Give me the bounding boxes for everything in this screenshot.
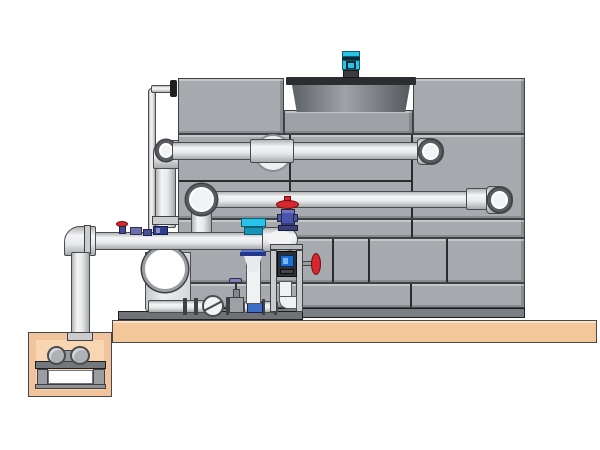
sump-riser-collar: [67, 332, 93, 341]
sump-pump-motor-end: [47, 346, 66, 365]
lower-pipe-sleeve: [466, 188, 488, 210]
cyan-valve-top: [241, 218, 266, 227]
sump-stand-base-bar: [35, 384, 106, 389]
sump-pump-volute-end: [70, 346, 90, 365]
globe-valve-side-lug: [277, 214, 282, 222]
upper-pipe-elbow-face: [419, 140, 442, 163]
tower-fan-deck: [284, 110, 413, 134]
fan-motor-base: [343, 70, 359, 78]
sump-stand-top-bar: [35, 361, 106, 369]
pipe-flange: [194, 298, 198, 315]
purple-fitting-small: [143, 229, 152, 236]
gate-valve-bonnet: [233, 289, 240, 298]
globe-valve-side-lug: [293, 214, 298, 222]
sensor-line-horizontal: [151, 85, 172, 93]
gate-valve-handle: [229, 278, 242, 283]
lower-pipe-left-elbow-face: [186, 184, 217, 215]
panel-seam: [332, 239, 334, 282]
upper-pipe-sleeve: [250, 139, 294, 163]
sump-stand-left-leg: [37, 369, 48, 385]
pump-suction-cover: [142, 246, 188, 292]
meter-indicator: [280, 269, 294, 274]
navy-fitting-band: [156, 228, 160, 233]
meter-screen-glyph: [283, 258, 288, 264]
tower-panel-top-right: [413, 78, 525, 134]
platform-slab: [112, 320, 597, 343]
header-elbow-flange: [84, 225, 91, 254]
panel-seam: [179, 180, 411, 182]
fan-cowl-rim: [286, 77, 416, 85]
globe-valve-base-flange: [278, 225, 298, 231]
sump-stand-right-leg: [93, 369, 105, 385]
lower-pipe: [200, 191, 495, 208]
panel-seam: [368, 239, 370, 282]
sump-riser-pipe: [71, 252, 90, 340]
gate-valve-body: [229, 297, 244, 313]
upper-pipe: [172, 142, 422, 160]
sensor-line-wall-flange: [170, 80, 177, 97]
stand-right-post: [296, 250, 303, 312]
mini-red-valve-body: [119, 226, 126, 234]
diagram-canvas: [0, 0, 600, 450]
stand-left-post: [270, 250, 277, 312]
cyan-valve-lower: [244, 227, 263, 235]
tower-panel-top-left: [178, 78, 284, 134]
side-valve-handwheel: [311, 253, 321, 275]
fan-cowl-body: [292, 85, 410, 112]
pipe-flange: [183, 298, 187, 315]
fan-motor-window-glass: [348, 63, 354, 68]
stand-elbow-pipe-bend: [279, 296, 297, 309]
panel-seam: [411, 220, 413, 237]
lower-pipe-elbow-face: [488, 188, 511, 212]
purple-fitting: [130, 227, 142, 235]
control-valve-flange-bot: [240, 252, 266, 256]
riser-flange: [152, 216, 179, 225]
panel-seam: [410, 284, 412, 307]
panel-seam: [446, 239, 448, 282]
sump-stand-recess: [48, 370, 93, 384]
globe-valve-handwheel: [276, 200, 299, 209]
